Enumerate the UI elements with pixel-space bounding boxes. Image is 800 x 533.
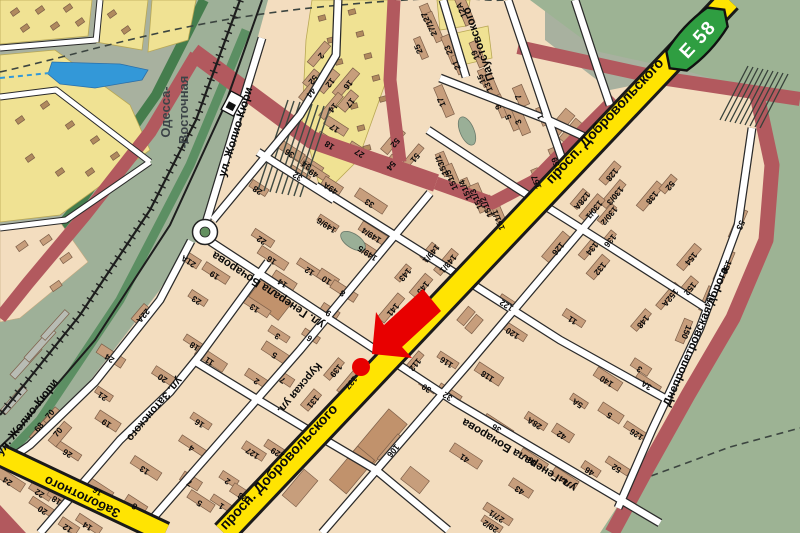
- station-label-line2: -Восточная: [176, 76, 191, 149]
- destination-dot-marker[interactable]: [352, 358, 370, 376]
- map-viewport[interactable]: E 58 Одесса- -Восточная просп. Доброволь…: [0, 0, 800, 533]
- roundabout: [193, 220, 218, 245]
- station-label-line1: Одесса-: [158, 86, 173, 137]
- map-canvas[interactable]: E 58 Одесса- -Восточная просп. Доброволь…: [0, 0, 800, 533]
